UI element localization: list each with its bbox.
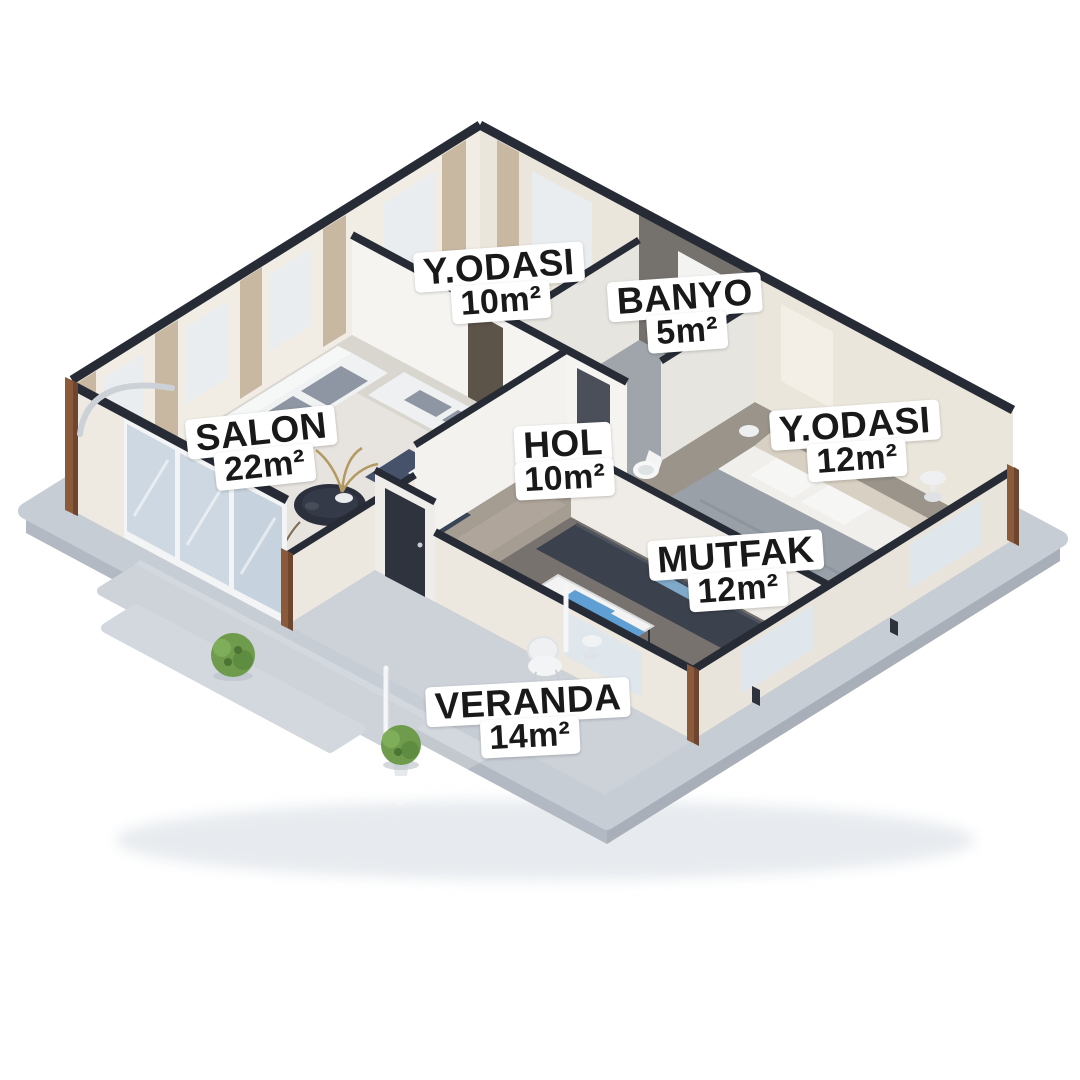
curtain-panel xyxy=(240,267,262,399)
bush-left xyxy=(211,633,255,681)
wood-post-shade xyxy=(1014,467,1019,546)
wood-post-shade xyxy=(73,381,78,516)
room-area: 5m² xyxy=(646,311,728,354)
room-label-bathroom: BANYO 5m² xyxy=(607,272,766,356)
table-bowl xyxy=(335,493,353,503)
room-label-bedroom-top: Y.ODASI 10m² xyxy=(413,241,587,326)
bush-foliage-light xyxy=(382,730,400,748)
room-label-bedroom-right: Y.ODASI 12m² xyxy=(769,399,943,484)
bush-foliage-light xyxy=(213,639,231,657)
table-bowl-dark xyxy=(305,502,319,510)
floorplan-scene: Y.ODASI 10m² BANYO 5m² SALON 22m² HOL 10… xyxy=(0,0,1080,1080)
toilet-seat xyxy=(638,465,654,475)
bush-foliage-dark xyxy=(401,741,419,759)
room-label-hall: HOL 10m² xyxy=(512,422,615,501)
bush-speck xyxy=(234,646,242,654)
curtain-panel xyxy=(323,215,346,347)
floorplan-render xyxy=(0,0,1080,1080)
ground-shadow xyxy=(115,800,975,880)
nightstand xyxy=(739,425,759,437)
wood-post-shade xyxy=(288,551,293,631)
side-table-top xyxy=(582,635,602,647)
room-area: 14m² xyxy=(479,716,580,759)
room-label-kitchen: MUTFAK 12m² xyxy=(647,529,827,615)
room-area: 12m² xyxy=(806,438,908,482)
room-area: 10m² xyxy=(450,280,552,324)
side-table-base xyxy=(584,653,598,659)
room-label-living-room: SALON 22m² xyxy=(185,404,342,493)
room-area: 12m² xyxy=(687,568,789,612)
pedestal-table-base xyxy=(924,492,942,502)
door-handle xyxy=(418,543,423,548)
room-label-veranda: VERANDA 14m² xyxy=(425,677,633,761)
bush-speck xyxy=(394,748,402,756)
bush-speck xyxy=(224,658,232,666)
wood-post-shade xyxy=(694,667,699,746)
room-area: 10m² xyxy=(514,458,615,501)
